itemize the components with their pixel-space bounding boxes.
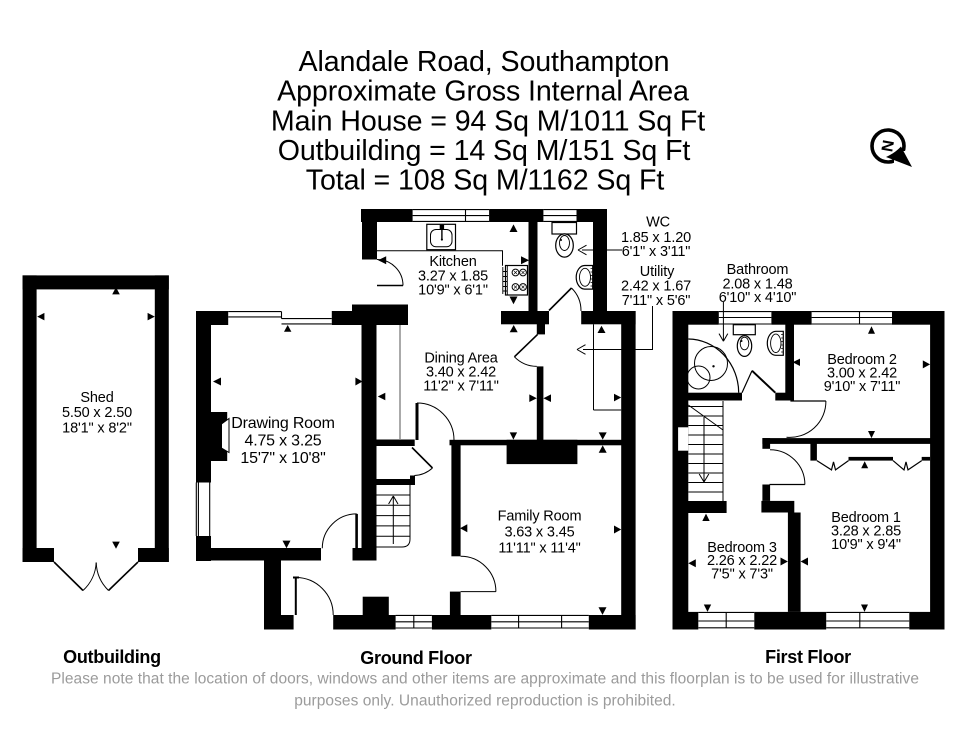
- svg-text:Main House = 94 Sq M/1011 Sq F: Main House = 94 Sq M/1011 Sq Ft: [271, 105, 705, 137]
- svg-text:6'10" x 4'10": 6'10" x 4'10": [719, 290, 797, 306]
- svg-text:18'1" x 8'2": 18'1" x 8'2": [62, 421, 132, 437]
- svg-text:Alandale Road, Southampton: Alandale Road, Southampton: [299, 46, 670, 78]
- svg-text:4.75 x 3.25: 4.75 x 3.25: [245, 433, 322, 450]
- svg-text:Shed: Shed: [80, 390, 113, 406]
- svg-text:Outbuilding = 14 Sq M/151 Sq F: Outbuilding = 14 Sq M/151 Sq Ft: [278, 135, 691, 167]
- svg-text:Please note that the location: Please note that the location of doors, …: [51, 671, 919, 688]
- svg-text:Drawing Room: Drawing Room: [231, 415, 334, 432]
- svg-text:Total = 108 Sq M/1162 Sq Ft: Total = 108 Sq M/1162 Sq Ft: [306, 165, 665, 197]
- svg-text:7'11" x 5'6": 7'11" x 5'6": [622, 293, 691, 309]
- svg-text:Approximate Gross Internal Are: Approximate Gross Internal Area: [277, 76, 689, 108]
- svg-text:purposes only. Unauthorized re: purposes only. Unauthorized reproduction…: [294, 693, 676, 710]
- svg-text:11'2" x 7'11": 11'2" x 7'11": [423, 379, 498, 395]
- svg-text:First Floor: First Floor: [765, 647, 851, 667]
- svg-text:Ground Floor: Ground Floor: [360, 648, 472, 668]
- svg-text:7'5" x 7'3": 7'5" x 7'3": [711, 567, 773, 583]
- svg-text:6'1" x 3'11": 6'1" x 3'11": [622, 244, 691, 260]
- svg-text:10'9" x 9'4": 10'9" x 9'4": [831, 537, 901, 553]
- svg-text:10'9" x 6'1": 10'9" x 6'1": [418, 283, 488, 299]
- svg-text:WC: WC: [646, 215, 670, 231]
- svg-text:9'10" x 7'11": 9'10" x 7'11": [824, 379, 901, 395]
- svg-text:Outbuilding: Outbuilding: [63, 647, 161, 667]
- svg-text:Family Room: Family Room: [498, 509, 582, 525]
- svg-text:11'11" x 11'4": 11'11" x 11'4": [498, 541, 580, 557]
- svg-text:3.63 x 3.45: 3.63 x 3.45: [504, 525, 574, 541]
- svg-text:15'7" x 10'8": 15'7" x 10'8": [240, 450, 325, 467]
- svg-text:5.50 x 2.50: 5.50 x 2.50: [62, 405, 132, 421]
